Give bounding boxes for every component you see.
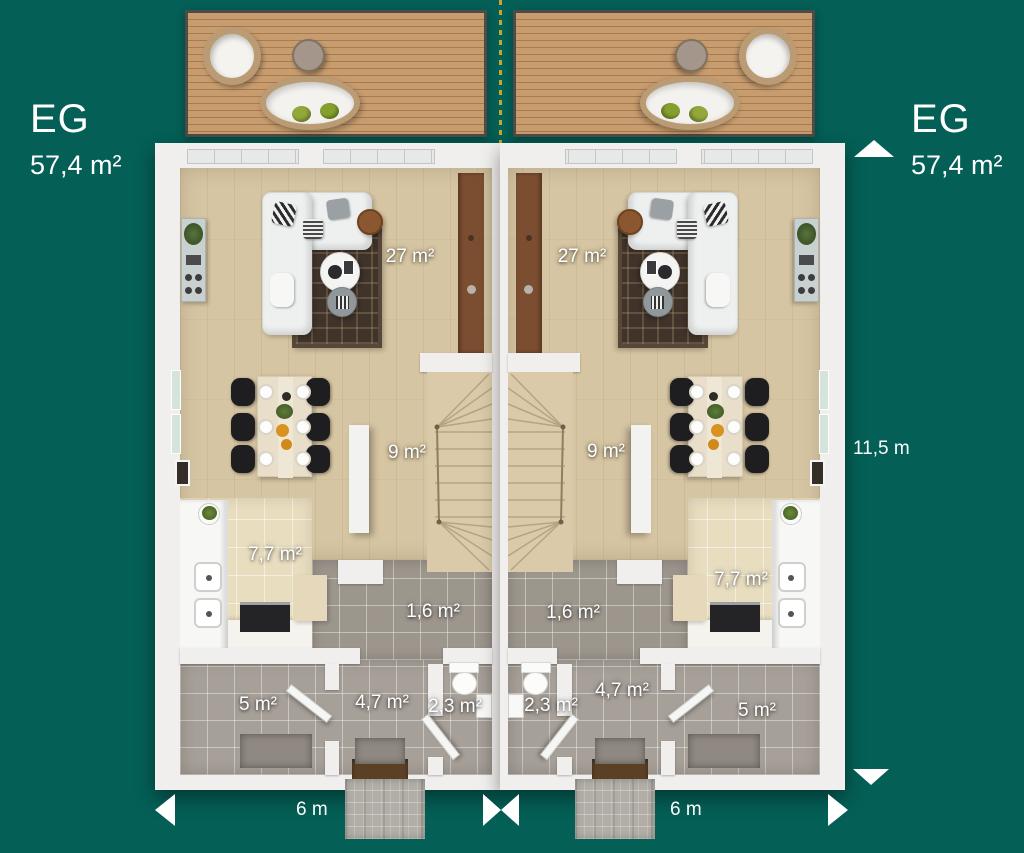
decor xyxy=(651,296,664,309)
decor xyxy=(808,287,815,294)
window xyxy=(819,414,829,454)
decor xyxy=(646,260,657,275)
dining-chair xyxy=(231,445,255,473)
decor xyxy=(798,287,805,294)
coffee-table xyxy=(640,252,680,292)
pillow-striped xyxy=(703,201,729,227)
interior-wall xyxy=(325,741,339,775)
depth-dimension: 11,5 m xyxy=(853,438,910,460)
decor xyxy=(336,296,349,309)
window xyxy=(819,370,829,410)
plant-pot xyxy=(198,503,220,525)
drain xyxy=(206,611,212,617)
sofa-pillow xyxy=(320,103,339,119)
pillow-gray xyxy=(326,198,351,221)
walkway-right xyxy=(575,779,655,839)
pillow-white xyxy=(270,273,294,307)
plant xyxy=(797,223,816,245)
floor-badge-right: EG 57,4 m² xyxy=(911,98,1003,181)
drain xyxy=(206,575,212,581)
decor xyxy=(185,287,192,294)
floor-badge-left: EG 57,4 m² xyxy=(30,98,122,181)
terrace-right xyxy=(513,10,815,137)
dining-chair xyxy=(745,378,769,406)
vase xyxy=(282,392,291,401)
plate xyxy=(726,451,742,467)
plant xyxy=(202,506,217,520)
wood-side-table xyxy=(357,209,383,235)
width-dimension-left: 6 m xyxy=(296,799,328,821)
partition-wall xyxy=(349,425,369,533)
plant-pot xyxy=(780,503,802,525)
plate xyxy=(689,419,705,435)
dining-chair xyxy=(745,445,769,473)
interior-wall xyxy=(428,757,443,775)
coffee-table xyxy=(320,252,360,292)
terrace-side-table xyxy=(292,39,325,72)
window xyxy=(701,149,813,164)
arrow-inward-left-icon xyxy=(501,794,519,826)
kitchen-peninsula xyxy=(293,575,327,621)
sink-basin xyxy=(194,562,222,592)
terrace-chair xyxy=(203,27,261,85)
terrace-chair xyxy=(739,27,797,85)
plant xyxy=(184,223,203,245)
door-detail xyxy=(468,235,474,241)
interior-wall xyxy=(661,741,675,775)
interior-wall xyxy=(180,648,360,664)
side-table xyxy=(643,287,673,317)
sofa-pillow xyxy=(661,103,680,119)
window xyxy=(171,370,181,410)
window xyxy=(565,149,677,164)
door-detail xyxy=(526,235,532,241)
room-label-living-right: 27 m² xyxy=(558,246,607,268)
room-label-entry-right: 4,7 m² xyxy=(595,680,649,702)
cooktop xyxy=(240,602,290,632)
room-label-wc-left: 2,3 m² xyxy=(428,696,482,718)
width-dimension-right: 6 m xyxy=(670,799,702,821)
floor-plan: EG 57,4 m² EG 57,4 m² 11,5 m 6 m 6 m 27 … xyxy=(0,0,1024,853)
centerpiece-plant xyxy=(276,404,293,419)
side-table xyxy=(327,287,357,317)
plate xyxy=(295,384,311,400)
arrow-inward-right-icon xyxy=(483,794,501,826)
entry-mat xyxy=(595,738,645,764)
arrow-down-icon xyxy=(853,769,889,785)
fruit xyxy=(281,439,292,450)
decor xyxy=(195,274,202,281)
stair-wall xyxy=(420,353,492,372)
vase xyxy=(709,392,718,401)
decor xyxy=(798,274,805,281)
closet xyxy=(338,560,383,584)
arrow-up-icon xyxy=(854,140,894,157)
sideboard xyxy=(181,218,206,302)
room-label-wc-right: 2,3 m² xyxy=(524,695,578,717)
plate xyxy=(689,384,705,400)
staircase xyxy=(427,372,492,572)
interior-wall xyxy=(325,664,339,690)
terrace-sofa xyxy=(640,76,740,130)
room-label-utility-right: 5 m² xyxy=(738,700,776,722)
entry-door xyxy=(516,173,542,353)
interior-wall xyxy=(557,757,572,775)
floor-mat xyxy=(688,734,760,768)
window xyxy=(187,149,299,164)
centerpiece-plant xyxy=(707,404,724,419)
decor xyxy=(658,265,672,279)
pillow-check xyxy=(303,219,323,239)
plate xyxy=(258,384,274,400)
sink-basin xyxy=(194,598,222,628)
terrace-sofa xyxy=(260,76,360,130)
plate xyxy=(295,419,311,435)
room-label-kitchen-right: 7,7 m² xyxy=(714,569,768,591)
picture-frame xyxy=(175,460,190,486)
dining-chair xyxy=(231,378,255,406)
floor-label: EG xyxy=(911,98,1003,140)
walkway-left xyxy=(345,779,425,839)
toilet-bowl xyxy=(452,672,477,695)
window xyxy=(323,149,435,164)
fruit xyxy=(276,424,289,437)
decor xyxy=(328,265,342,279)
plant xyxy=(783,506,798,520)
decor xyxy=(808,274,815,281)
wood-side-table xyxy=(617,209,643,235)
kitchen-peninsula xyxy=(673,575,707,621)
closet xyxy=(617,560,662,584)
wc-sink xyxy=(508,694,524,718)
decor xyxy=(185,274,192,281)
sofa-pillow xyxy=(689,106,708,122)
property-boundary-line xyxy=(499,0,502,143)
plate xyxy=(726,419,742,435)
plate xyxy=(726,384,742,400)
plate xyxy=(258,451,274,467)
unit-right xyxy=(500,143,845,790)
room-label-kitchen-left: 7,7 m² xyxy=(248,544,302,566)
room-label-entry-left: 4,7 m² xyxy=(355,692,409,714)
room-label-hall-right: 9 m² xyxy=(587,441,625,463)
drain xyxy=(788,575,794,581)
plate xyxy=(295,451,311,467)
room-label-hall-left: 9 m² xyxy=(388,442,426,464)
sink-basin xyxy=(778,562,806,592)
floor-label: EG xyxy=(30,98,122,140)
door-handle xyxy=(467,285,476,294)
cooktop xyxy=(710,602,760,632)
pillow-gray xyxy=(650,198,675,221)
arrow-left-icon xyxy=(155,794,175,826)
entry-mat xyxy=(355,738,405,764)
drain xyxy=(788,611,794,617)
entry-door xyxy=(458,173,484,353)
room-label-corridor-left: 1,6 m² xyxy=(406,601,460,623)
floor-mat xyxy=(240,734,312,768)
dining-chair xyxy=(231,413,255,441)
tray xyxy=(186,255,201,265)
door-handle xyxy=(524,285,533,294)
window xyxy=(171,414,181,454)
unit-left xyxy=(155,143,500,790)
pillow-white xyxy=(706,273,730,307)
sink-basin xyxy=(778,598,806,628)
staircase xyxy=(508,372,573,572)
room-label-corridor-right: 1,6 m² xyxy=(546,602,600,624)
room-label-utility-left: 5 m² xyxy=(239,694,277,716)
fruit xyxy=(708,439,719,450)
pillow-check xyxy=(677,219,697,239)
interior-wall xyxy=(640,648,820,664)
picture-frame xyxy=(810,460,825,486)
plate xyxy=(258,419,274,435)
plate xyxy=(689,451,705,467)
decor xyxy=(195,287,202,294)
interior-wall xyxy=(661,664,675,690)
stair-wall xyxy=(508,353,580,372)
terrace-side-table xyxy=(675,39,708,72)
room-label-living-left: 27 m² xyxy=(386,246,435,268)
floor-area: 57,4 m² xyxy=(30,150,122,181)
partition-wall xyxy=(631,425,651,533)
tray xyxy=(799,255,814,265)
fruit xyxy=(711,424,724,437)
toilet-bowl xyxy=(523,672,548,695)
sofa-pillow xyxy=(292,106,311,122)
dining-chair xyxy=(745,413,769,441)
terrace-left xyxy=(185,10,487,137)
floor-area: 57,4 m² xyxy=(911,150,1003,181)
decor xyxy=(343,260,354,275)
arrow-right-icon xyxy=(828,794,848,826)
pillow-striped xyxy=(271,201,297,227)
sideboard xyxy=(794,218,819,302)
